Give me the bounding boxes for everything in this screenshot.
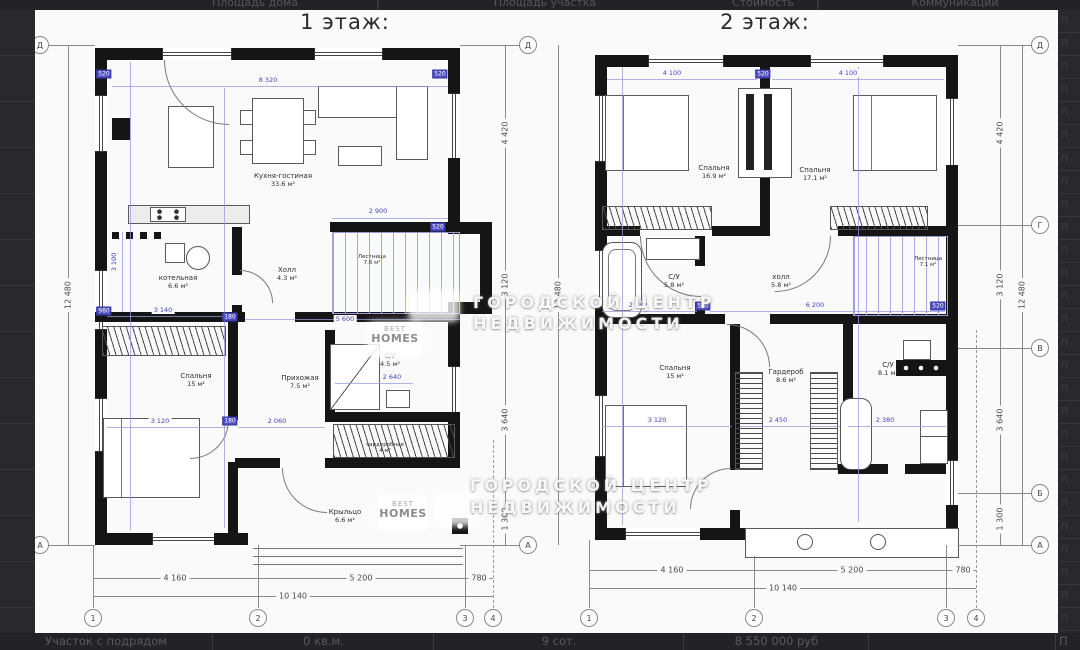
dim-line (122, 232, 123, 312)
grid-bubble: А (519, 536, 537, 554)
balcony (745, 528, 959, 558)
left-rail (0, 10, 35, 633)
room-label: Спальня16.9 м² (698, 164, 729, 180)
column (140, 232, 147, 239)
balcony-column (797, 534, 813, 550)
axis-line (958, 493, 1032, 494)
axis-line (460, 545, 520, 546)
listing-cell: 9 сот. (433, 633, 684, 650)
dim-line (107, 316, 232, 317)
dim-line (112, 86, 448, 87)
dim-label: 12 480 (64, 278, 73, 312)
room-label: Спальня15 м² (180, 372, 211, 388)
room-label: Лестница7.6 м² (358, 254, 386, 266)
wall (235, 458, 280, 468)
header-separator: | (376, 0, 380, 9)
window (810, 55, 884, 67)
bathtub (840, 398, 872, 470)
dim-label: 6 200 (804, 301, 827, 309)
wall (325, 412, 460, 422)
dim-line (607, 79, 757, 80)
rail-cell: П (1058, 539, 1080, 562)
dim-line (772, 79, 944, 80)
dim-line (107, 427, 227, 428)
room-label: Крыльцо6.6 м² (329, 508, 362, 524)
wall (230, 48, 314, 60)
right-rail: П П П П П П П П П П П П П П П П П П П П … (1058, 10, 1080, 633)
room-label: Кухня-гостиная33.6 м² (254, 172, 312, 188)
window (946, 98, 958, 167)
grid-bubble: 2 (249, 609, 267, 627)
axis-line (958, 348, 1032, 349)
toilet-icon (903, 340, 931, 360)
grid-bubble: Г (1031, 216, 1049, 234)
grid-bubble: 3 (937, 609, 955, 627)
wall (214, 533, 248, 545)
dim-line (332, 218, 448, 219)
wall (448, 48, 460, 93)
dim-label: 5 200 (347, 574, 376, 583)
closet-door (764, 94, 772, 170)
rail-cell: П (1058, 102, 1080, 125)
wall (712, 226, 770, 236)
wall (730, 510, 740, 528)
rail-cell: П (1058, 286, 1080, 309)
watermark-text: ГОРОДСКОЙ ЦЕНТР (470, 476, 713, 495)
construction-line (858, 67, 859, 522)
axis-line (460, 45, 520, 46)
dim-label: 10 140 (766, 584, 800, 593)
stove-icon (150, 207, 186, 222)
wall (600, 55, 648, 67)
bed (853, 95, 937, 171)
shelf (896, 360, 946, 376)
dim-label: 4 100 (837, 69, 860, 77)
dim-label: 1 300 (996, 505, 1005, 534)
dim-label: 2 380 (874, 416, 897, 424)
header-cell: Коммуникации (911, 0, 998, 9)
dim-tag: 980 (96, 307, 111, 316)
rail-cell: П (1058, 470, 1080, 493)
dim-line (238, 427, 325, 428)
grid-bubble: Б (1031, 484, 1049, 502)
wall (95, 533, 152, 545)
dim-label: 3 640 (996, 406, 1005, 435)
dim-label: 4 160 (161, 574, 190, 583)
coffee-table (338, 146, 382, 166)
grid-bubble: 3 (456, 609, 474, 627)
boiler-icon (186, 246, 210, 270)
dim-label: 780 (468, 574, 489, 583)
construction-line (224, 88, 225, 528)
dim-label: 5 600 (334, 315, 357, 323)
kitchen-counter (128, 205, 250, 224)
room-label: Спальня15 м² (659, 364, 690, 380)
construction-line (130, 62, 131, 530)
rail-cell: П (1058, 309, 1080, 332)
dim-line (602, 426, 732, 427)
table-header-row: Площадь дома | Площадь участка Стоимость… (0, 0, 1080, 10)
room-label: холл5.8 м² (771, 273, 791, 289)
fireplace (112, 118, 130, 140)
window (152, 533, 216, 545)
dim-tag: 520 (755, 70, 770, 79)
chair (303, 110, 316, 125)
grid-bubble: Д (519, 36, 537, 54)
rail-cell: П (1058, 194, 1080, 217)
wardrobe-hatch (810, 372, 838, 470)
room-label: С/У5.8 м² (664, 273, 684, 289)
room-label: гардеробная4 м² (366, 442, 403, 454)
dim-label: 12 480 (1018, 278, 1027, 312)
room-label: Прихожая7.5 м² (281, 374, 319, 390)
rail-cell: П (1058, 355, 1080, 378)
grid-bubble: 4 (967, 609, 985, 627)
window (95, 95, 107, 152)
grid-bubble: А (1031, 536, 1049, 554)
axis-line (976, 330, 977, 608)
rail-cell: П (1058, 217, 1080, 240)
dim-label: 5 200 (838, 566, 867, 575)
wall (95, 150, 107, 270)
dim-tag: 520 (432, 70, 447, 79)
wall (595, 160, 607, 250)
rail-cell: П (1058, 148, 1080, 171)
header-cell: Площадь участка (494, 0, 596, 9)
dim-line (710, 311, 945, 312)
dim-label: 3 640 (501, 406, 510, 435)
floor2-title: 2 этаж: (665, 10, 865, 34)
dim-label: 2 640 (381, 373, 404, 381)
dim-label: 4 420 (501, 119, 510, 148)
wardrobe-hatch (602, 206, 712, 230)
room-label: Лестница7.1 м² (914, 256, 942, 268)
listing-cell: 8 550 000 руб (683, 633, 869, 650)
wall (595, 55, 607, 95)
axis-line (465, 545, 466, 608)
rail-cell: П (1058, 378, 1080, 401)
grid-bubble: 2 (745, 609, 763, 627)
axis-line (493, 440, 494, 608)
axis-line (93, 545, 94, 608)
dim-label: 3 140 (152, 306, 175, 314)
best-homes-logo: BEST HOMES (368, 322, 422, 357)
rail-cell: П (1058, 10, 1080, 33)
watermark-blob (408, 290, 460, 322)
rail-cell: П (1058, 33, 1080, 56)
listing-cell (868, 633, 1056, 650)
dim-line (93, 578, 493, 579)
dim-label: 4 100 (661, 69, 684, 77)
wardrobe-hatch (102, 326, 226, 356)
porch-steps (253, 541, 463, 565)
dim-tag: 520 (930, 302, 945, 311)
window (625, 528, 702, 540)
listing-cell: 0 кв.м. (212, 633, 434, 650)
wall (595, 528, 625, 540)
rail-cell: П (1058, 332, 1080, 355)
dining-table (252, 98, 304, 164)
rail-cell: П (1058, 562, 1080, 585)
window (946, 460, 958, 507)
rail-cell: П (1058, 447, 1080, 470)
dim-tag: 180 (222, 313, 237, 322)
listing-page-screenshot: 1 этаж: (0, 0, 1080, 650)
wall (228, 462, 238, 533)
dim-label: 2 060 (266, 417, 289, 425)
dim-label: 2 900 (367, 207, 390, 215)
dim-line (740, 426, 840, 427)
dim-label: 3 120 (996, 271, 1005, 300)
wall (232, 227, 242, 275)
column (154, 232, 161, 239)
axis-line (49, 45, 95, 46)
rail-cell: П (1058, 585, 1080, 608)
closet-door (746, 94, 754, 170)
listing-cell: Участок с подрядом (0, 633, 212, 650)
dim-tag: 180 (222, 417, 237, 426)
room-label: С/У8.1 м² (878, 361, 898, 377)
wardrobe-hatch (735, 372, 763, 470)
rail-cell: П (1058, 125, 1080, 148)
sofa (396, 86, 428, 160)
dim-label: 2 450 (767, 416, 790, 424)
window (162, 48, 232, 60)
dim-label: 3 120 (149, 417, 172, 425)
wall (448, 158, 460, 230)
chair (240, 110, 253, 125)
balcony-column (870, 534, 886, 550)
wall (100, 48, 162, 60)
wardrobe-hatch (830, 206, 928, 230)
watermark-text: НЕДВИЖИМОСТИ (473, 314, 684, 333)
dim-line (589, 570, 976, 571)
dim-line (848, 426, 946, 427)
rail-cell: П (1058, 240, 1080, 263)
bed (605, 95, 689, 171)
window (314, 48, 383, 60)
wall (325, 458, 460, 468)
chair (240, 140, 253, 155)
grid-bubble: В (1031, 339, 1049, 357)
window (648, 55, 724, 67)
axis-line (946, 545, 947, 608)
dim-label: 780 (952, 566, 973, 575)
washer-icon (165, 243, 185, 263)
sink-icon (920, 410, 948, 464)
axis-line (258, 545, 259, 608)
wall (700, 528, 745, 540)
axis-line (958, 225, 1032, 226)
header-separator: | (816, 0, 820, 9)
dim-tag: 520 (96, 70, 111, 79)
rail-cell: П (1058, 424, 1080, 447)
rail-cell: П (1058, 493, 1080, 516)
dim-label: 10 140 (276, 592, 310, 601)
chair (303, 140, 316, 155)
rail-cell: П (1058, 56, 1080, 79)
rail-cell: П (1058, 171, 1080, 194)
axis-line (754, 556, 755, 608)
dim-label: 4 420 (996, 119, 1005, 148)
rail-cell: П (1058, 263, 1080, 286)
axis-line (958, 545, 1032, 546)
room-label: Спальня17.1 м² (799, 166, 830, 182)
axis-line (958, 45, 1032, 46)
room-label: Гардероб8.6 м² (768, 368, 803, 384)
rail-cell: П (1058, 401, 1080, 424)
grid-bubble: 1 (84, 609, 102, 627)
dim-label: 3 100 (110, 251, 118, 274)
column (112, 232, 119, 239)
axis-line (49, 545, 95, 546)
dim-label: 4 160 (658, 566, 687, 575)
listing-cell: П (1055, 633, 1080, 650)
best-homes-logo: BEST HOMES (378, 497, 428, 530)
sink-icon (386, 390, 410, 408)
header-cell: Стоимость (732, 0, 794, 9)
floor1-title: 1 этаж: (245, 10, 445, 34)
wall (905, 464, 946, 474)
watermark-text: ГОРОДСКОЙ ЦЕНТР (473, 293, 716, 312)
rail-cell: П (1058, 516, 1080, 539)
watermark-text: НЕДВИЖИМОСТИ (470, 498, 681, 517)
grid-bubble: 1 (580, 609, 598, 627)
grid-bubble: 4 (484, 609, 502, 627)
grid-bubble: Д (1031, 36, 1049, 54)
window (448, 93, 460, 160)
axis-line (589, 540, 590, 608)
dim-tag: 520 (430, 223, 445, 232)
listing-row[interactable]: Участок с подрядом 0 кв.м. 9 сот. 8 550 … (0, 633, 1080, 650)
dim-label: 3 120 (646, 416, 669, 424)
header-cell: Площадь дома (212, 0, 298, 9)
dim-line (335, 383, 413, 384)
dim-label: 8 320 (257, 76, 280, 84)
room-label: Холл4.3 м² (277, 266, 297, 282)
wall (946, 55, 958, 98)
bed (103, 418, 200, 498)
wall (228, 322, 238, 420)
rail-cell: П (1058, 608, 1080, 631)
rail-cell: П (1058, 79, 1080, 102)
room-label: котельная6.6 м² (159, 274, 198, 290)
